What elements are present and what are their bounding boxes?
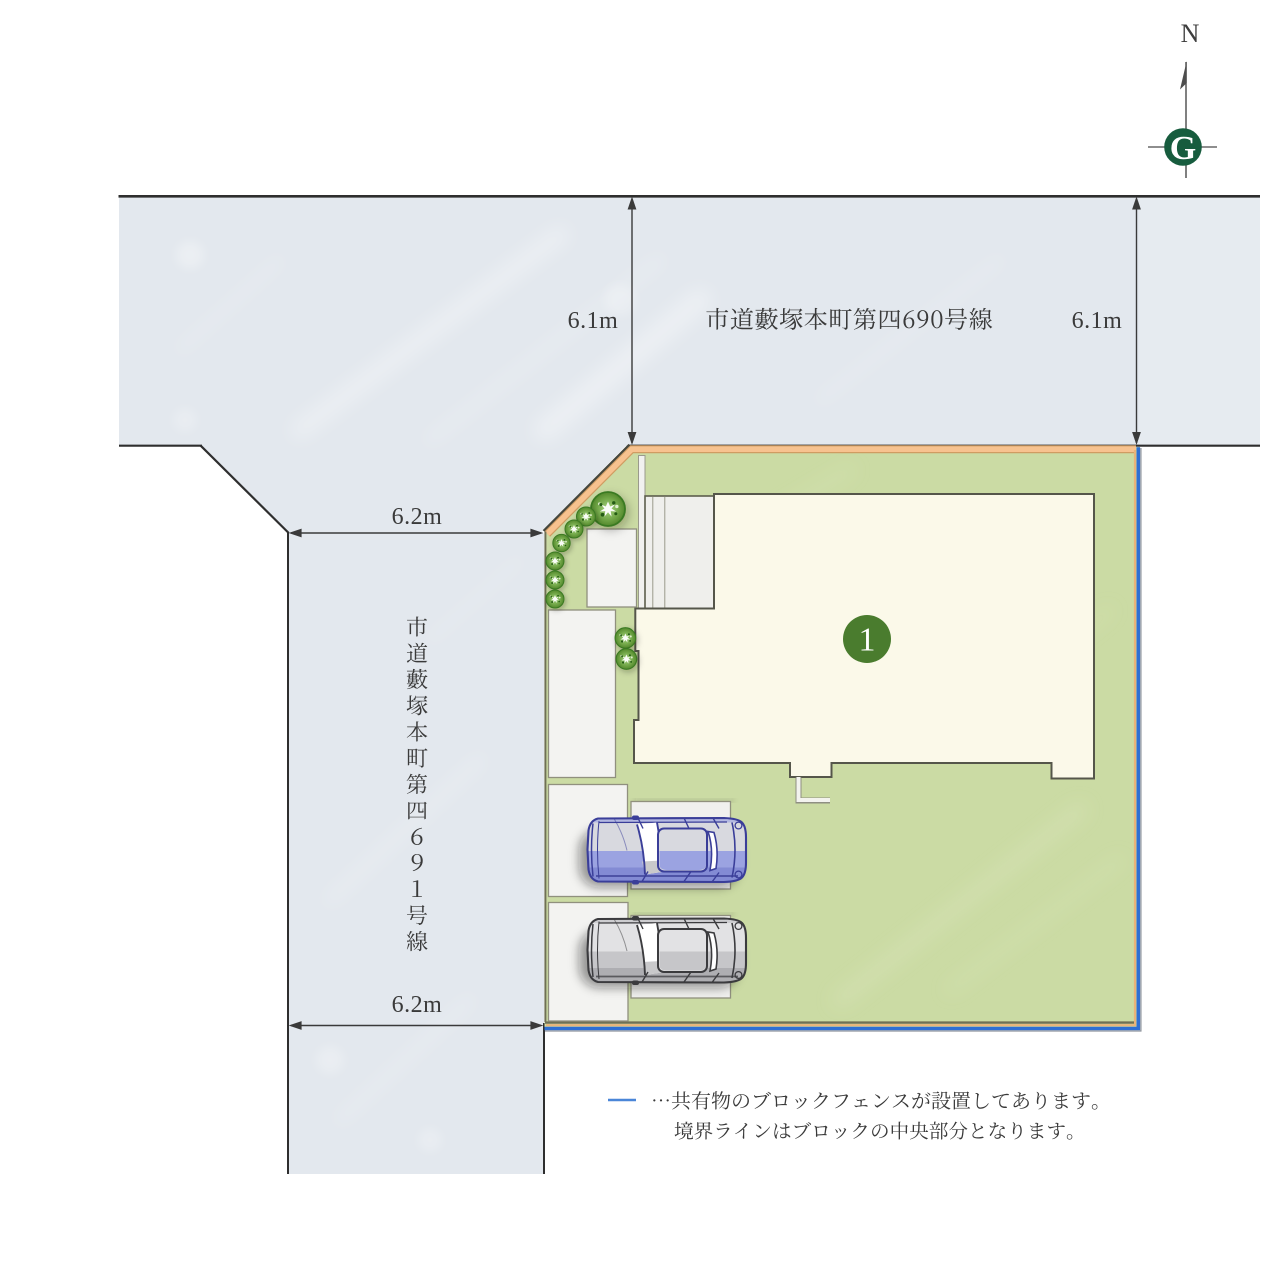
svg-text:6.2m: 6.2m bbox=[392, 992, 443, 1018]
svg-text:6.1m: 6.1m bbox=[1072, 308, 1123, 334]
svg-text:1: 1 bbox=[859, 622, 876, 659]
svg-text:N: N bbox=[1181, 19, 1200, 48]
svg-text:G: G bbox=[1170, 130, 1196, 167]
svg-text:6.1m: 6.1m bbox=[568, 308, 619, 334]
svg-text:6.2m: 6.2m bbox=[392, 504, 443, 530]
